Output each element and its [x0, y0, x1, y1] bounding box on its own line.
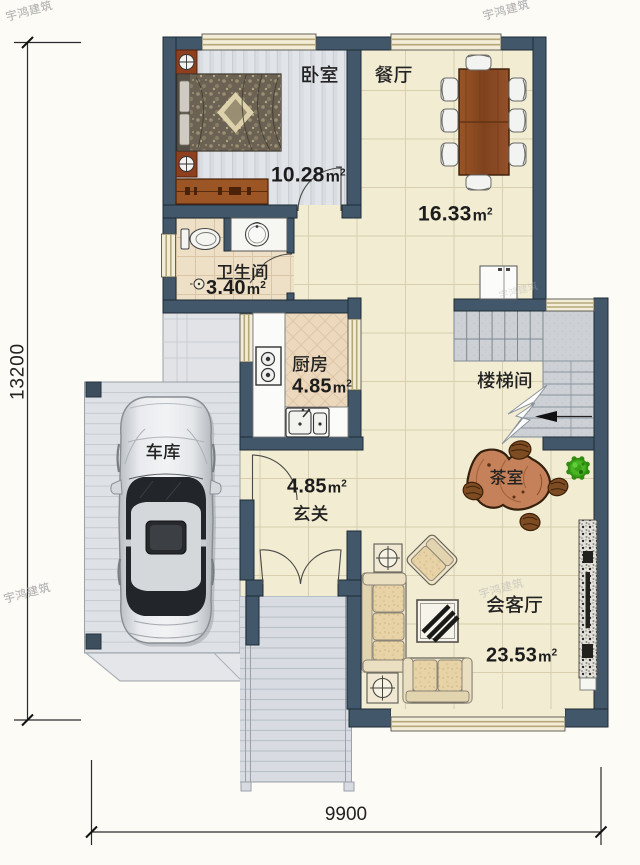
svg-text:23.53m2: 23.53m2	[486, 645, 558, 667]
svg-text:9900: 9900	[325, 804, 367, 825]
svg-text:4.85m2: 4.85m2	[287, 476, 347, 498]
svg-text:13200: 13200	[8, 343, 29, 400]
svg-text:3.40m2: 3.40m2	[206, 277, 266, 299]
svg-text:4.85m2: 4.85m2	[292, 376, 352, 398]
